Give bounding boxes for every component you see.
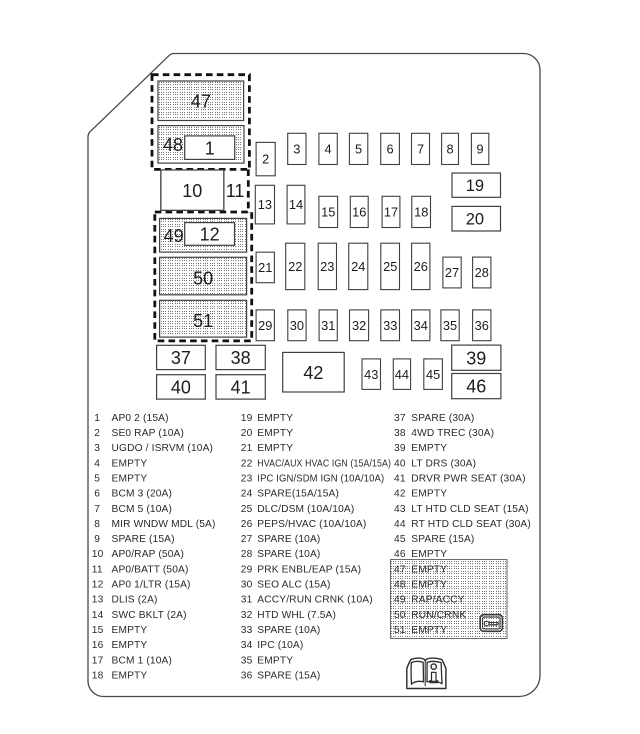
svg-text:EMPTY: EMPTY <box>257 443 293 454</box>
svg-text:47: 47 <box>394 564 406 575</box>
svg-text:38: 38 <box>231 348 251 368</box>
svg-text:47: 47 <box>191 91 211 111</box>
svg-text:49: 49 <box>164 226 184 246</box>
svg-text:PRK ENBL/EAP (15A): PRK ENBL/EAP (15A) <box>257 564 361 575</box>
svg-text:16: 16 <box>92 640 104 651</box>
svg-text:14: 14 <box>92 610 104 621</box>
svg-text:SPARE (15A): SPARE (15A) <box>112 534 175 545</box>
svg-text:49: 49 <box>394 595 406 606</box>
svg-text:SPARE (10A): SPARE (10A) <box>257 549 320 560</box>
svg-text:41: 41 <box>231 378 251 398</box>
svg-text:23: 23 <box>241 474 253 485</box>
svg-text:DLIS (2A): DLIS (2A) <box>112 595 158 606</box>
svg-text:SPARE (15A): SPARE (15A) <box>257 670 320 681</box>
svg-text:EMPTY: EMPTY <box>257 655 293 666</box>
svg-text:13: 13 <box>92 595 104 606</box>
svg-text:3: 3 <box>94 443 100 454</box>
svg-text:11: 11 <box>92 564 103 575</box>
svg-text:44: 44 <box>394 519 406 530</box>
svg-text:SPARE (15A): SPARE (15A) <box>411 534 474 545</box>
svg-text:25: 25 <box>241 504 253 515</box>
svg-text:EMPTY: EMPTY <box>112 474 148 485</box>
svg-text:SEO ALC (15A): SEO ALC (15A) <box>257 580 330 591</box>
svg-text:RT HTD CLD SEAT (30A): RT HTD CLD SEAT (30A) <box>411 519 531 530</box>
svg-text:SWC BKLT (2A): SWC BKLT (2A) <box>112 610 187 621</box>
svg-text:14: 14 <box>289 197 303 212</box>
svg-text:EMPTY: EMPTY <box>112 458 148 469</box>
svg-text:UGDO / ISRVM (10A): UGDO / ISRVM (10A) <box>112 443 214 454</box>
svg-text:EMPTY: EMPTY <box>257 413 293 424</box>
svg-text:50: 50 <box>394 610 406 621</box>
svg-text:40: 40 <box>171 378 191 398</box>
svg-text:DLC/DSM (10A/10A): DLC/DSM (10A/10A) <box>257 504 354 515</box>
svg-text:34: 34 <box>241 640 253 651</box>
svg-text:36: 36 <box>241 670 253 681</box>
svg-text:BCM 5 (10A): BCM 5 (10A) <box>112 504 173 515</box>
svg-text:16: 16 <box>352 205 366 220</box>
svg-text:EMPTY: EMPTY <box>112 640 148 651</box>
svg-text:IPC IGN/SDM IGN (10A/10A): IPC IGN/SDM IGN (10A/10A) <box>257 474 384 485</box>
svg-text:31: 31 <box>241 595 253 606</box>
svg-text:LT DRS (30A): LT DRS (30A) <box>411 458 476 469</box>
svg-text:PEPS/HVAC (10A/10A): PEPS/HVAC (10A/10A) <box>257 519 366 530</box>
svg-text:10: 10 <box>92 549 104 560</box>
svg-text:30: 30 <box>290 318 304 333</box>
svg-text:SPARE(15A/15A): SPARE(15A/15A) <box>257 489 339 500</box>
svg-text:11: 11 <box>226 181 245 201</box>
svg-text:2: 2 <box>94 428 100 439</box>
svg-text:EMPTY: EMPTY <box>112 670 148 681</box>
svg-text:38: 38 <box>394 428 406 439</box>
svg-text:2: 2 <box>262 152 269 167</box>
svg-text:33: 33 <box>383 318 397 333</box>
svg-text:29: 29 <box>241 564 253 575</box>
svg-text:9: 9 <box>477 142 484 157</box>
svg-text:29: 29 <box>258 318 272 333</box>
svg-text:27: 27 <box>445 265 459 280</box>
svg-text:AP0 2 (15A): AP0 2 (15A) <box>112 413 169 424</box>
svg-text:AP0/RAP (50A): AP0/RAP (50A) <box>112 549 185 560</box>
svg-text:31: 31 <box>321 318 335 333</box>
svg-text:39: 39 <box>466 348 486 368</box>
svg-text:4: 4 <box>94 458 100 469</box>
svg-text:12: 12 <box>200 225 220 245</box>
svg-text:SPARE (10A): SPARE (10A) <box>257 534 320 545</box>
svg-text:SPARE (30A): SPARE (30A) <box>411 413 474 424</box>
svg-text:EMPTY: EMPTY <box>112 625 148 636</box>
svg-text:8: 8 <box>94 519 100 530</box>
svg-text:40: 40 <box>394 458 406 469</box>
svg-text:22: 22 <box>241 458 253 469</box>
svg-text:24: 24 <box>351 259 365 274</box>
svg-text:26: 26 <box>241 519 253 530</box>
svg-text:7: 7 <box>94 504 100 515</box>
svg-text:28: 28 <box>241 549 253 560</box>
svg-text:4: 4 <box>325 142 332 157</box>
svg-text:BCM 3 (20A): BCM 3 (20A) <box>112 489 173 500</box>
svg-text:EMPTY: EMPTY <box>257 428 293 439</box>
svg-text:18: 18 <box>414 205 428 220</box>
svg-text:RUN/CRNK: RUN/CRNK <box>411 610 466 621</box>
svg-text:48: 48 <box>394 580 406 591</box>
svg-text:MIR WNDW MDL (5A): MIR WNDW MDL (5A) <box>112 519 216 530</box>
svg-text:45: 45 <box>394 534 406 545</box>
svg-text:HTD WHL (7.5A): HTD WHL (7.5A) <box>257 610 336 621</box>
svg-text:SPARE (10A): SPARE (10A) <box>257 625 320 636</box>
svg-text:13: 13 <box>258 197 272 212</box>
svg-text:BCM 1 (10A): BCM 1 (10A) <box>112 655 173 666</box>
svg-text:12: 12 <box>92 580 104 591</box>
svg-text:48: 48 <box>163 135 183 155</box>
svg-text:SE0 RAP (10A): SE0 RAP (10A) <box>112 428 185 439</box>
svg-text:9: 9 <box>94 534 100 545</box>
svg-text:37: 37 <box>171 348 191 368</box>
svg-text:32: 32 <box>241 610 253 621</box>
svg-text:35: 35 <box>443 318 457 333</box>
svg-text:34: 34 <box>414 318 428 333</box>
svg-text:30: 30 <box>241 580 253 591</box>
svg-text:RAP/ACCY: RAP/ACCY <box>411 595 464 606</box>
svg-text:AP0 1/LTR (15A): AP0 1/LTR (15A) <box>112 580 191 591</box>
svg-text:IPC (10A): IPC (10A) <box>257 640 303 651</box>
svg-text:43: 43 <box>394 504 406 515</box>
svg-text:45: 45 <box>426 367 440 382</box>
svg-text:1: 1 <box>205 138 215 158</box>
svg-text:DRVR PWR SEAT (30A): DRVR PWR SEAT (30A) <box>411 474 525 485</box>
svg-text:EMPTY: EMPTY <box>411 564 447 575</box>
svg-text:36: 36 <box>475 318 489 333</box>
svg-text:32: 32 <box>352 318 366 333</box>
svg-text:33: 33 <box>241 625 253 636</box>
svg-text:17: 17 <box>92 655 104 666</box>
svg-text:25: 25 <box>383 259 397 274</box>
svg-text:27: 27 <box>241 534 253 545</box>
svg-text:51: 51 <box>394 625 406 636</box>
svg-text:8: 8 <box>447 142 454 157</box>
svg-text:1: 1 <box>94 413 100 424</box>
svg-text:46: 46 <box>466 377 486 397</box>
svg-text:42: 42 <box>303 363 323 383</box>
svg-text:28: 28 <box>475 265 489 280</box>
svg-text:35: 35 <box>241 655 253 666</box>
svg-text:3: 3 <box>293 142 300 157</box>
svg-text:15: 15 <box>321 205 335 220</box>
svg-text:EMPTY: EMPTY <box>411 580 447 591</box>
svg-text:43: 43 <box>364 367 378 382</box>
svg-text:ACCY/RUN CRNK (10A): ACCY/RUN CRNK (10A) <box>257 595 373 606</box>
svg-text:5: 5 <box>355 142 362 157</box>
svg-text:20: 20 <box>466 210 484 228</box>
svg-text:21: 21 <box>241 443 253 454</box>
svg-text:EMPTY: EMPTY <box>411 625 447 636</box>
svg-text:42: 42 <box>394 489 406 500</box>
svg-text:18: 18 <box>92 670 104 681</box>
svg-text:AP0/BATT (50A): AP0/BATT (50A) <box>112 564 189 575</box>
svg-text:22: 22 <box>288 259 302 274</box>
svg-text:44: 44 <box>395 367 409 382</box>
svg-text:19: 19 <box>466 177 484 195</box>
svg-text:50: 50 <box>193 268 213 288</box>
svg-text:19: 19 <box>241 413 253 424</box>
svg-text:26: 26 <box>414 259 428 274</box>
svg-text:51: 51 <box>193 311 213 331</box>
svg-text:37: 37 <box>394 413 406 424</box>
svg-text:5: 5 <box>94 474 100 485</box>
svg-text:EMPTY: EMPTY <box>411 549 447 560</box>
svg-text:10: 10 <box>182 181 202 201</box>
svg-text:39: 39 <box>394 443 406 454</box>
svg-text:EMPTY: EMPTY <box>411 443 447 454</box>
svg-text:23: 23 <box>320 259 334 274</box>
svg-text:24: 24 <box>241 489 253 500</box>
svg-text:6: 6 <box>94 489 100 500</box>
svg-text:HVAC/AUX HVAC IGN (15A/15A): HVAC/AUX HVAC IGN (15A/15A) <box>257 458 391 469</box>
svg-text:EMPTY: EMPTY <box>411 489 447 500</box>
svg-text:LT HTD CLD SEAT (15A): LT HTD CLD SEAT (15A) <box>411 504 528 515</box>
svg-text:17: 17 <box>384 205 398 220</box>
svg-text:20: 20 <box>241 428 253 439</box>
svg-text:46: 46 <box>394 549 406 560</box>
svg-text:4WD TREC (30A): 4WD TREC (30A) <box>411 428 494 439</box>
svg-text:7: 7 <box>417 142 424 157</box>
svg-text:41: 41 <box>394 474 406 485</box>
svg-text:15: 15 <box>92 625 104 636</box>
svg-text:21: 21 <box>258 260 272 275</box>
svg-text:6: 6 <box>387 142 394 157</box>
